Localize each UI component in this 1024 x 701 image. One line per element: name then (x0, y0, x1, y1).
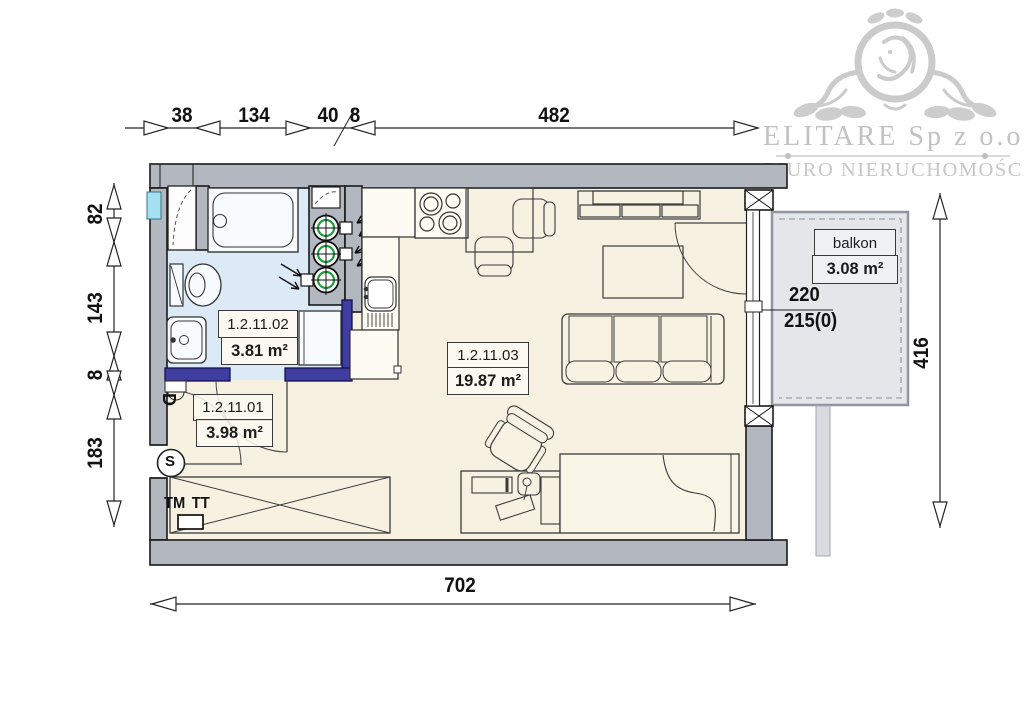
dim-top-134: 134 (233, 104, 274, 128)
room-area-main: 19.87 m² (447, 367, 529, 395)
dim-left-8: 8 (84, 359, 108, 391)
dim-top-482: 482 (531, 104, 578, 128)
room-id-main: 1.2.11.03 (447, 342, 529, 369)
tt-mark: TT (192, 495, 210, 512)
dim-left-82: 82 (84, 194, 108, 234)
tm-tt-annotation: TMTT (164, 495, 210, 513)
dim-top-40: 40 (313, 104, 344, 128)
tm-mark: TM (164, 495, 185, 512)
switchboard-mark: S (165, 453, 175, 470)
labels: 38 134 40 8 482 82 143 8 183 702 416 1.2… (0, 0, 1024, 701)
room-area-bathroom: 3.81 m² (221, 337, 298, 365)
dim-left-183: 183 (84, 431, 108, 474)
dim-right-416: 416 (910, 330, 934, 377)
dim-top-38: 38 (168, 104, 197, 128)
balcony-label: balkon (814, 229, 896, 257)
dim-left-143: 143 (84, 286, 108, 329)
dim-bottom-702: 702 (433, 574, 487, 598)
window-width-mark: 220 (789, 284, 820, 307)
room-id-hall: 1.2.11.01 (193, 394, 273, 421)
floorplan-page: ELITARE Sp z o.o. BIURO NIERUCHOMOŚCI (0, 0, 1024, 701)
room-area-hall: 3.98 m² (196, 419, 273, 447)
window-sill-mark: 215(0) (784, 310, 837, 333)
balcony-area: 3.08 m² (812, 255, 898, 284)
dim-top-8: 8 (347, 104, 363, 128)
room-id-bathroom: 1.2.11.02 (218, 310, 298, 338)
door-mark: D (158, 393, 179, 406)
